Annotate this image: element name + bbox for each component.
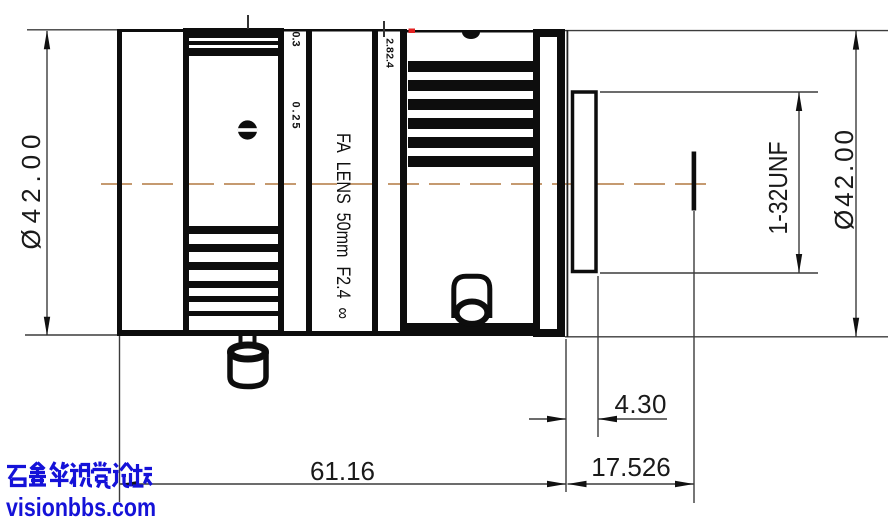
svg-text:FA LENS 50mm F2.4 ∞: FA LENS 50mm F2.4 ∞ bbox=[332, 133, 353, 319]
svg-text:4.30: 4.30 bbox=[615, 389, 667, 419]
svg-text:0.3: 0.3 bbox=[290, 31, 302, 46]
svg-text:2.8: 2.8 bbox=[384, 38, 396, 53]
svg-text:17.526: 17.526 bbox=[591, 452, 671, 482]
svg-text:0.25: 0.25 bbox=[290, 102, 302, 129]
svg-text:visionbbs.com: visionbbs.com bbox=[6, 492, 156, 519]
svg-text:1-32UNF: 1-32UNF bbox=[763, 142, 793, 235]
svg-text:61.16: 61.16 bbox=[310, 456, 375, 486]
svg-text:Ø42.00: Ø42.00 bbox=[829, 130, 859, 230]
svg-text:2.4: 2.4 bbox=[384, 53, 396, 68]
